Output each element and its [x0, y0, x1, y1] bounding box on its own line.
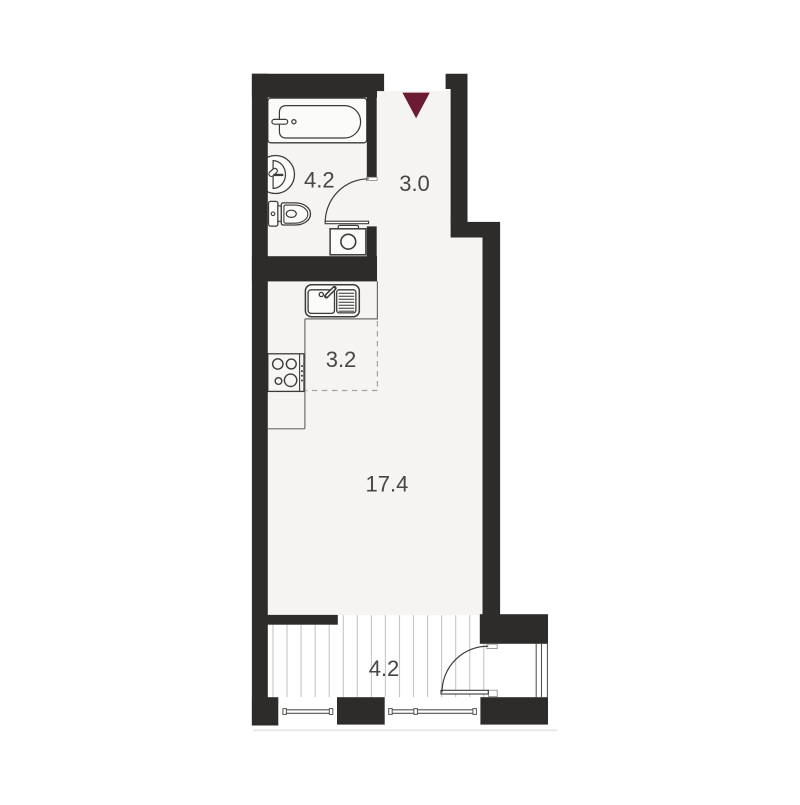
- svg-text:3.2: 3.2: [326, 347, 357, 372]
- svg-text:17.4: 17.4: [365, 471, 408, 496]
- svg-text:3.0: 3.0: [399, 171, 430, 196]
- svg-text:4.2: 4.2: [304, 167, 335, 192]
- svg-text:4.2: 4.2: [369, 656, 400, 681]
